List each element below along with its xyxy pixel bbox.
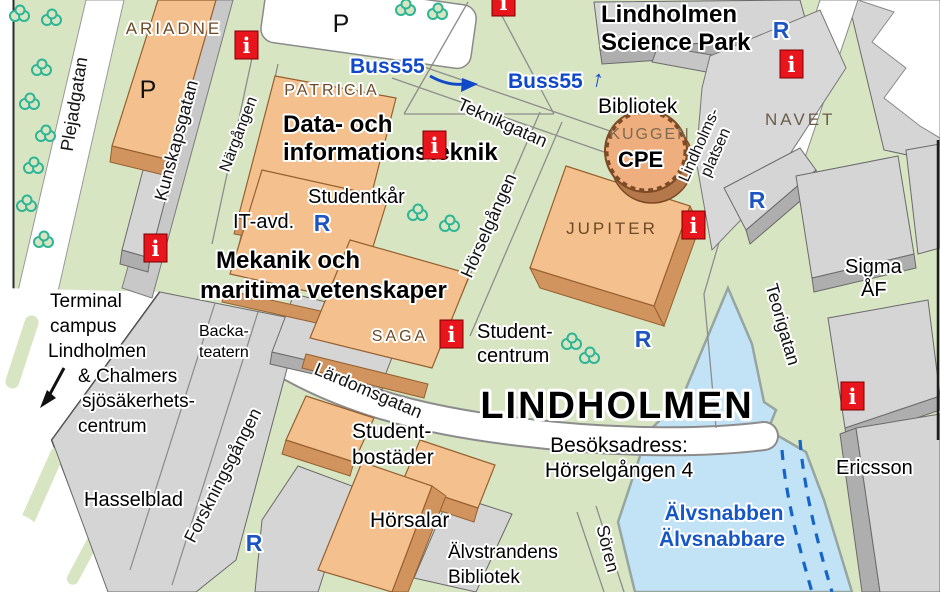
info-marker-icon: i [780, 50, 803, 78]
label-alvsnabben-1: Älvsnabben [664, 502, 783, 525]
building-label-patricia: PATRICIA [284, 82, 379, 99]
svg-text:R: R [635, 326, 652, 352]
building-label-jupiter: JUPITER [566, 219, 658, 238]
info-marker-icon: i [235, 31, 258, 59]
svg-text:R: R [749, 187, 766, 213]
svg-text:i: i [788, 52, 796, 77]
info-marker-icon: i [682, 211, 705, 239]
svg-text:R: R [246, 530, 263, 556]
label-mekanik-2: maritima vetenskaper [200, 277, 447, 304]
label-studentcentrum-2: centrum [477, 345, 549, 367]
svg-text:Terminal: Terminal [50, 291, 122, 312]
svg-text:i: i [500, 0, 508, 15]
label-ericsson: Ericsson [836, 457, 913, 479]
info-marker-icon: i [440, 320, 463, 348]
label-bibliotek: Bibliotek [598, 95, 678, 118]
info-marker-icon: i [492, 0, 515, 16]
svg-text:i: i [448, 322, 456, 347]
label-mekanik-1: Mekanik och [216, 247, 360, 274]
building-label-kuggen: KUGGEN [609, 126, 690, 143]
label-alvsnabben-2: Älvsnabbare [659, 528, 785, 551]
svg-text:i: i [849, 384, 857, 409]
label-studentcentrum-1: Student- [477, 321, 553, 343]
label-lindholmen: LINDHOLMEN [480, 385, 753, 427]
label-alvstrandens-2: Bibliotek [448, 567, 520, 588]
road-left-strip [0, 0, 13, 292]
label-buss55-west: Buss55 [350, 55, 425, 78]
label-science-park-2: Science Park [601, 29, 751, 56]
svg-text:R: R [773, 17, 790, 43]
label-sigma-2: ÅF [861, 278, 887, 301]
label-data-2: informationsteknik [283, 139, 498, 166]
map-canvas: Plejadgatan Kunskapsgatan Närgången Tekn… [0, 0, 940, 592]
svg-text:i: i [690, 213, 698, 238]
svg-text:sjösäkerhets-: sjösäkerhets- [82, 391, 195, 412]
svg-text:i: i [431, 133, 439, 158]
label-buss55-east: Buss55 [508, 70, 583, 93]
info-marker-icon: i [144, 234, 167, 262]
svg-text:i: i [243, 33, 251, 58]
label-sigma-1: Sigma [845, 256, 903, 278]
svg-text:centrum: centrum [78, 416, 147, 437]
info-marker-icon: i [841, 382, 864, 410]
label-backa-1: Backa- [199, 323, 249, 340]
svg-text:& Chalmers: & Chalmers [78, 366, 177, 387]
label-besok-2: Hörselgången 4 [545, 459, 694, 482]
svg-text:Lindholmen: Lindholmen [48, 341, 146, 362]
campus-map[interactable]: Plejadgatan Kunskapsgatan Närgången Tekn… [0, 0, 940, 592]
building-label-ariadne: ARIADNE [126, 19, 223, 38]
svg-text:i: i [152, 236, 160, 261]
label-studentkar: Studentkår [308, 186, 405, 208]
label-cpe: CPE [618, 147, 663, 172]
building-label-saga: SAGA [372, 328, 428, 345]
label-hasselblad: Hasselblad [84, 489, 183, 511]
label-it-avd: IT-avd. [233, 211, 294, 233]
label-alvstrandens-1: Älvstrandens [448, 542, 558, 563]
building-label-navet: NAVET [765, 110, 835, 129]
svg-text:R: R [314, 210, 331, 236]
label-backa-2: teatern [199, 344, 249, 361]
label-science-park-1: Lindholmen [601, 1, 737, 28]
label-bostader-1: Student- [352, 420, 431, 443]
parking-label-ariadne: P [140, 76, 157, 104]
label-data-1: Data- och [283, 111, 392, 138]
svg-text:campus: campus [50, 316, 117, 337]
label-horsalar: Hörsalar [370, 509, 449, 532]
info-marker-icon: i [423, 131, 446, 159]
label-bostader-2: bostäder [352, 446, 434, 469]
parking-label-lot: P [333, 10, 350, 38]
label-besok-1: Besöksadress: [550, 434, 688, 457]
